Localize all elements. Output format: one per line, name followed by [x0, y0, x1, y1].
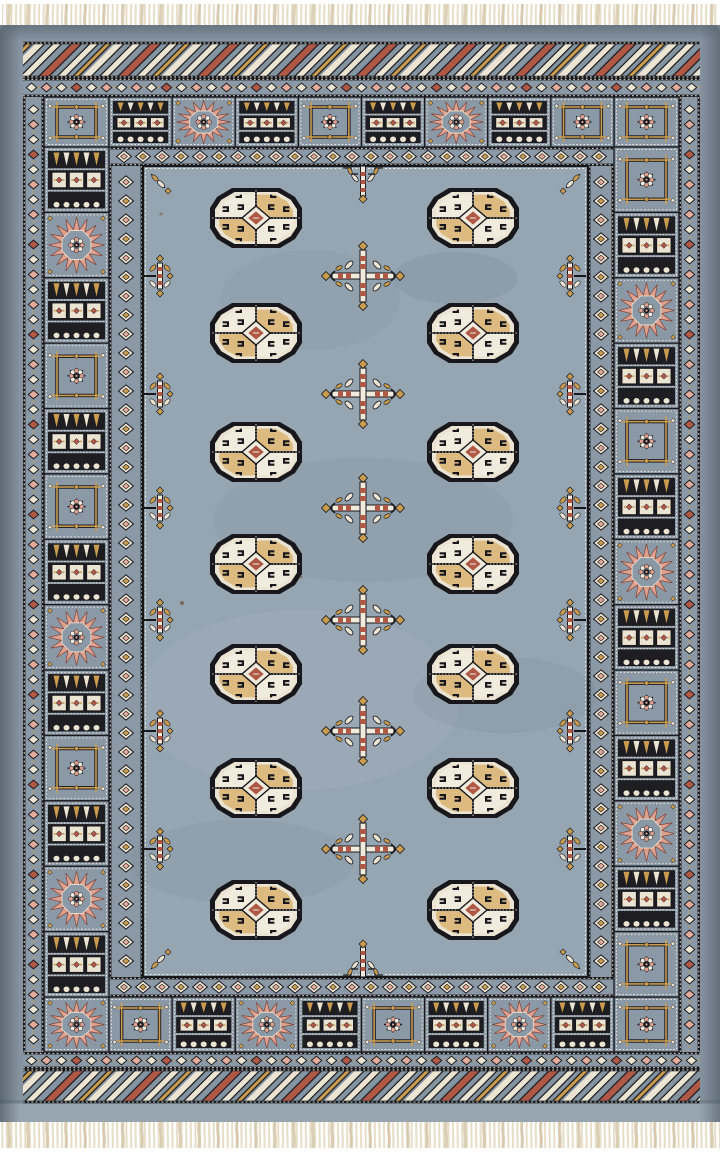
snow-panel: [44, 343, 109, 408]
band-panel: [172, 997, 235, 1052]
gul-medallion: [210, 644, 302, 704]
gul-medallion: [210, 534, 302, 594]
gul-medallion: [427, 534, 519, 594]
gul-medallion: [210, 880, 302, 940]
sun-panel: [44, 866, 109, 931]
gul-medallion: [427, 758, 519, 818]
snow-panel: [614, 147, 679, 212]
snow-panel: [551, 97, 614, 147]
sun-panel: [614, 801, 679, 866]
gul-medallion: [427, 303, 519, 363]
snow-panel: [614, 409, 679, 474]
gul-medallion: [427, 880, 519, 940]
band-panel: [614, 605, 679, 670]
band-panel: [44, 670, 109, 735]
gul-medallion: [210, 422, 302, 482]
band-panel: [235, 97, 298, 147]
band-panel: [44, 539, 109, 604]
snow-panel: [614, 97, 679, 147]
sun-panel: [614, 539, 679, 604]
gul-medallion: [210, 188, 302, 248]
rug-image: [0, 0, 720, 1152]
band-panel: [614, 735, 679, 800]
band-panel: [44, 278, 109, 343]
sun-panel: [172, 97, 235, 147]
rug-product-photo: [0, 0, 720, 1152]
sun-panel: [235, 997, 298, 1052]
snow-panel: [44, 735, 109, 800]
gul-medallion: [427, 422, 519, 482]
gul-medallion: [427, 188, 519, 248]
band-panel: [44, 801, 109, 866]
gul-medallion: [210, 303, 302, 363]
band-panel: [614, 866, 679, 931]
band-panel: [614, 212, 679, 277]
band-panel: [488, 97, 551, 147]
band-panel: [44, 147, 109, 212]
sun-panel: [44, 212, 109, 277]
snow-panel: [298, 97, 361, 147]
sun-panel: [425, 97, 488, 147]
gul-medallion: [427, 644, 519, 704]
sun-panel: [44, 997, 109, 1052]
zigzag-border-bottom: [23, 1069, 700, 1103]
snow-panel: [614, 997, 679, 1052]
snow-panel: [614, 670, 679, 735]
gul-medallion: [210, 758, 302, 818]
fringe-bottom: [0, 1121, 720, 1148]
sun-panel: [488, 997, 551, 1052]
band-panel: [362, 97, 425, 147]
band-panel: [109, 97, 172, 147]
band-panel: [44, 409, 109, 474]
band-panel: [44, 932, 109, 997]
band-panel: [614, 474, 679, 539]
snow-panel: [109, 997, 172, 1052]
band-panel: [551, 997, 614, 1052]
band-panel: [614, 343, 679, 408]
snow-panel: [362, 997, 425, 1052]
zigzag-border-top: [23, 42, 700, 78]
band-panel: [425, 997, 488, 1052]
sun-panel: [614, 278, 679, 343]
field: [130, 166, 597, 977]
sun-panel: [44, 605, 109, 670]
fringe-top: [2, 4, 718, 25]
snow-panel: [614, 932, 679, 997]
snow-panel: [44, 474, 109, 539]
snow-panel: [44, 97, 109, 147]
band-panel: [298, 997, 361, 1052]
